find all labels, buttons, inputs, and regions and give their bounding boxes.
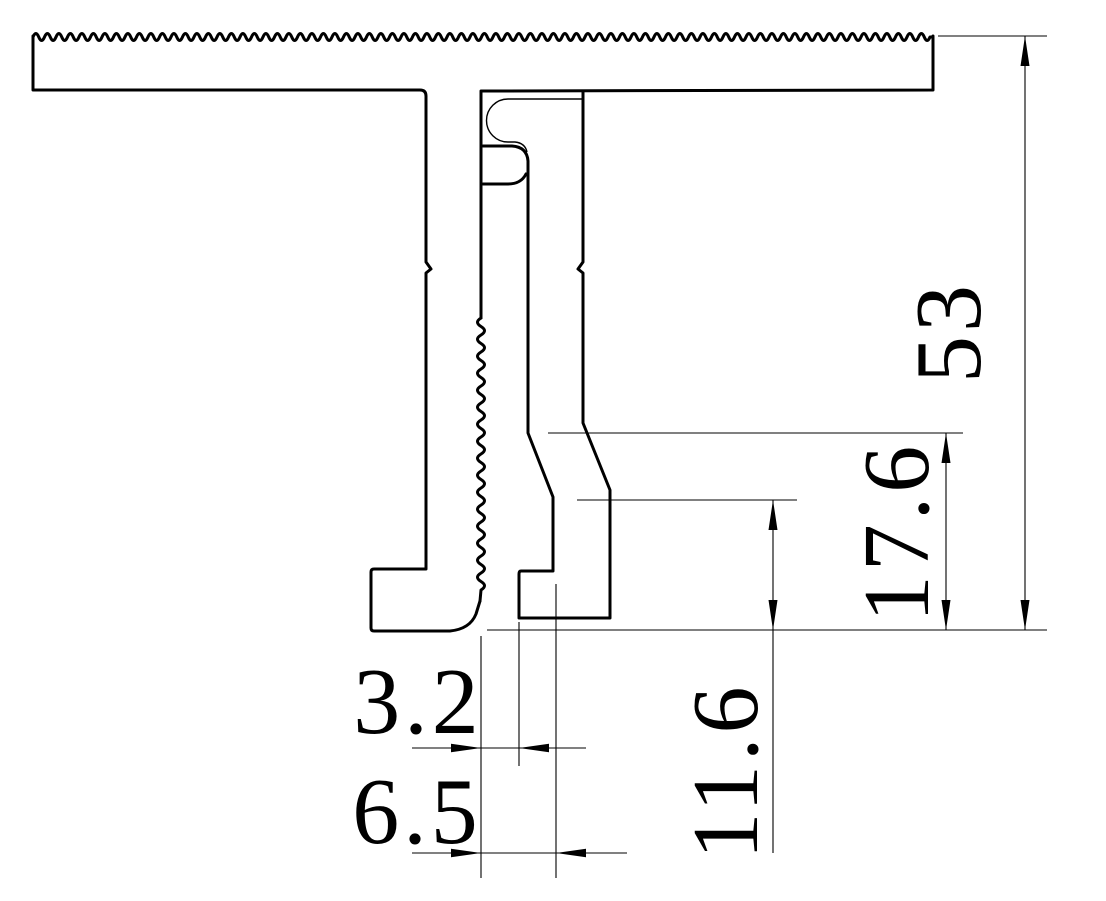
dim-text-6-5: 6.5	[352, 760, 482, 864]
drawing-canvas: 53 17.6 11.6 3.2 6.5	[0, 0, 1106, 901]
curl-inner-wall	[487, 99, 584, 152]
dim-text-11-6: 11.6	[674, 682, 778, 859]
dim-text-17-6: 17.6	[845, 442, 949, 623]
knurl-side-edge	[478, 318, 485, 601]
profile-drawing-svg: 53 17.6 11.6 3.2 6.5	[0, 0, 1106, 901]
knurl-top-edge	[33, 34, 933, 41]
dim-text-53: 53	[897, 281, 1001, 383]
slot-top-lip	[483, 174, 526, 184]
right-leg-outline	[483, 91, 610, 618]
dim-text-3-2: 3.2	[353, 650, 483, 754]
